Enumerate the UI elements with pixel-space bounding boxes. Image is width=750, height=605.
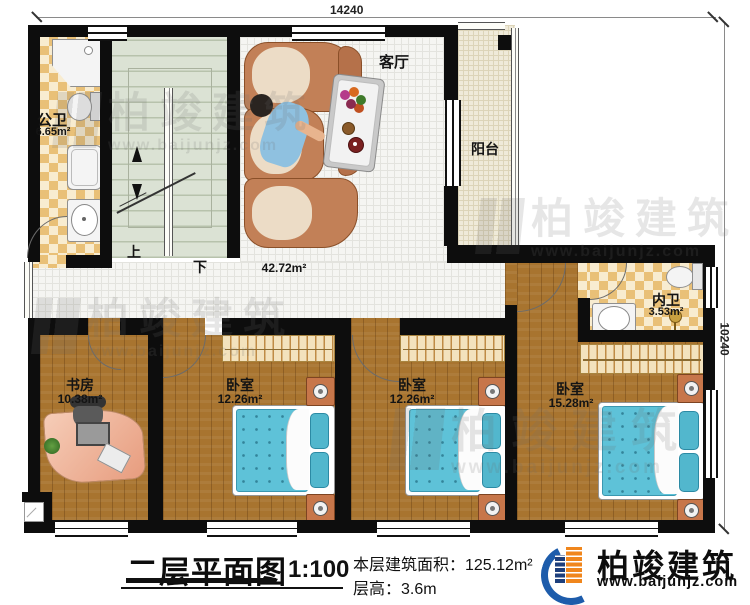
study-area: 10.38m² bbox=[58, 392, 103, 406]
wall bbox=[470, 520, 565, 533]
balcony-floor bbox=[458, 25, 515, 245]
brand-website: www.baijunjz.com bbox=[597, 574, 738, 590]
title-underline-thick bbox=[126, 578, 276, 583]
stairs-up-label: 上 bbox=[127, 242, 141, 262]
stair-railing bbox=[164, 88, 173, 256]
bedroom2-wardrobe bbox=[400, 335, 505, 362]
window bbox=[207, 520, 297, 537]
plan-scale: 1:100 bbox=[288, 556, 349, 584]
wall bbox=[222, 318, 335, 335]
stairs-down-label: 下 bbox=[193, 257, 207, 277]
hallway-end-window bbox=[24, 262, 33, 318]
wall bbox=[148, 318, 163, 520]
window bbox=[292, 25, 385, 41]
shower-head bbox=[84, 46, 93, 55]
inner-sink-basin bbox=[598, 306, 630, 332]
wall bbox=[578, 330, 703, 342]
wall bbox=[335, 318, 351, 520]
wall bbox=[227, 25, 240, 258]
sofa-cushion bbox=[252, 186, 312, 240]
wall bbox=[385, 25, 453, 37]
wall bbox=[128, 520, 207, 533]
balcony-label: 阳台 bbox=[471, 139, 499, 159]
wall bbox=[505, 318, 517, 520]
bedroom2-door-gap bbox=[351, 318, 400, 335]
window bbox=[55, 520, 128, 537]
wall bbox=[444, 186, 458, 246]
stair-down-arrow bbox=[132, 184, 142, 200]
floor-height-text: 层高：3.6m bbox=[353, 575, 437, 599]
wall bbox=[100, 37, 112, 258]
bedroom1-wardrobe bbox=[222, 335, 335, 362]
floor-plan-canvas: 柏竣建筑 www.baijunjz.com 柏竣建筑 www.baijunjz.… bbox=[0, 0, 750, 605]
nightstand bbox=[677, 374, 706, 403]
stair-up-arrow bbox=[132, 146, 142, 162]
top-dimension-value: 14240 bbox=[330, 3, 363, 17]
nightstand bbox=[677, 499, 706, 522]
wall bbox=[40, 318, 88, 335]
wall bbox=[400, 318, 505, 335]
master-pillow bbox=[679, 411, 699, 450]
balcony-railing bbox=[511, 28, 519, 245]
nightstand-knob bbox=[313, 501, 328, 516]
window bbox=[88, 25, 127, 41]
desk-monitor bbox=[76, 422, 110, 446]
wall bbox=[66, 255, 112, 268]
wall bbox=[444, 25, 458, 100]
table-plate-dot bbox=[353, 142, 357, 146]
bedroom2-blanket-fold bbox=[458, 409, 481, 490]
wall bbox=[28, 318, 40, 500]
bedroom1-area: 12.26m² bbox=[218, 392, 263, 406]
watermark-brand: 柏竣建筑 bbox=[531, 198, 739, 240]
flower-bouquet bbox=[340, 90, 350, 100]
bedroom1-blanket-fold bbox=[286, 409, 309, 490]
living-room-label: 客厅 bbox=[379, 51, 409, 72]
logo-building-orange bbox=[566, 547, 582, 583]
wall bbox=[297, 520, 377, 533]
wall bbox=[28, 25, 40, 262]
bedroom1-pillow bbox=[310, 452, 329, 488]
suite-door-gap bbox=[505, 263, 517, 310]
person-head bbox=[250, 94, 273, 117]
bathtub-inner bbox=[71, 149, 98, 186]
nightstand bbox=[478, 494, 507, 523]
public-bath-area: 6.65m² bbox=[36, 126, 71, 138]
wall bbox=[505, 305, 517, 318]
inner-toilet-bowl bbox=[666, 266, 694, 288]
master-wardrobe bbox=[580, 344, 704, 374]
right-dimension-line bbox=[724, 22, 725, 530]
right-dimension-value: 10240 bbox=[718, 322, 732, 355]
inner-toilet-tank bbox=[692, 263, 703, 290]
washbasin-drain bbox=[82, 217, 86, 221]
inner-bath-area: 3.53m² bbox=[649, 306, 684, 318]
desk-plant bbox=[44, 438, 60, 454]
balcony-railing bbox=[458, 22, 505, 30]
bedroom2-pillow bbox=[482, 413, 501, 449]
window bbox=[704, 267, 718, 308]
wall bbox=[447, 245, 715, 263]
title-underline-thin bbox=[121, 587, 343, 589]
top-dimension-line bbox=[36, 17, 716, 18]
toilet-bowl bbox=[67, 93, 92, 121]
nightstand bbox=[306, 377, 335, 406]
bedroom2-pillow bbox=[482, 452, 501, 488]
logo-building-dark bbox=[555, 555, 565, 583]
bedroom1-pillow bbox=[310, 413, 329, 449]
master-bedroom-area: 15.28m² bbox=[549, 396, 594, 410]
table-item-small bbox=[342, 122, 355, 135]
nightstand-knob bbox=[485, 501, 500, 516]
nightstand-knob bbox=[684, 381, 699, 396]
inner-bath-door-gap bbox=[578, 263, 590, 298]
study-door-gap bbox=[88, 318, 120, 335]
nightstand-knob bbox=[485, 384, 500, 399]
balcony-sliding-door bbox=[445, 100, 461, 186]
wall bbox=[127, 25, 292, 37]
living-room-area: 42.72m² bbox=[262, 261, 307, 275]
master-pillow bbox=[679, 453, 699, 492]
bedroom2-area: 12.26m² bbox=[390, 392, 435, 406]
brand-logo-icon bbox=[541, 539, 595, 601]
window bbox=[704, 390, 718, 478]
shaft-box bbox=[24, 502, 44, 522]
nightstand-knob bbox=[684, 503, 699, 518]
bedroom1-door-gap bbox=[163, 318, 205, 335]
nightstand bbox=[478, 377, 507, 406]
nightstand bbox=[306, 494, 335, 523]
window bbox=[377, 520, 470, 537]
plan-title: 二层平面图 bbox=[127, 547, 287, 592]
window bbox=[565, 520, 658, 537]
master-blanket-fold bbox=[654, 406, 678, 494]
nightstand-knob bbox=[313, 384, 328, 399]
floor-area-text: 本层建筑面积：125.12m² bbox=[353, 551, 533, 575]
